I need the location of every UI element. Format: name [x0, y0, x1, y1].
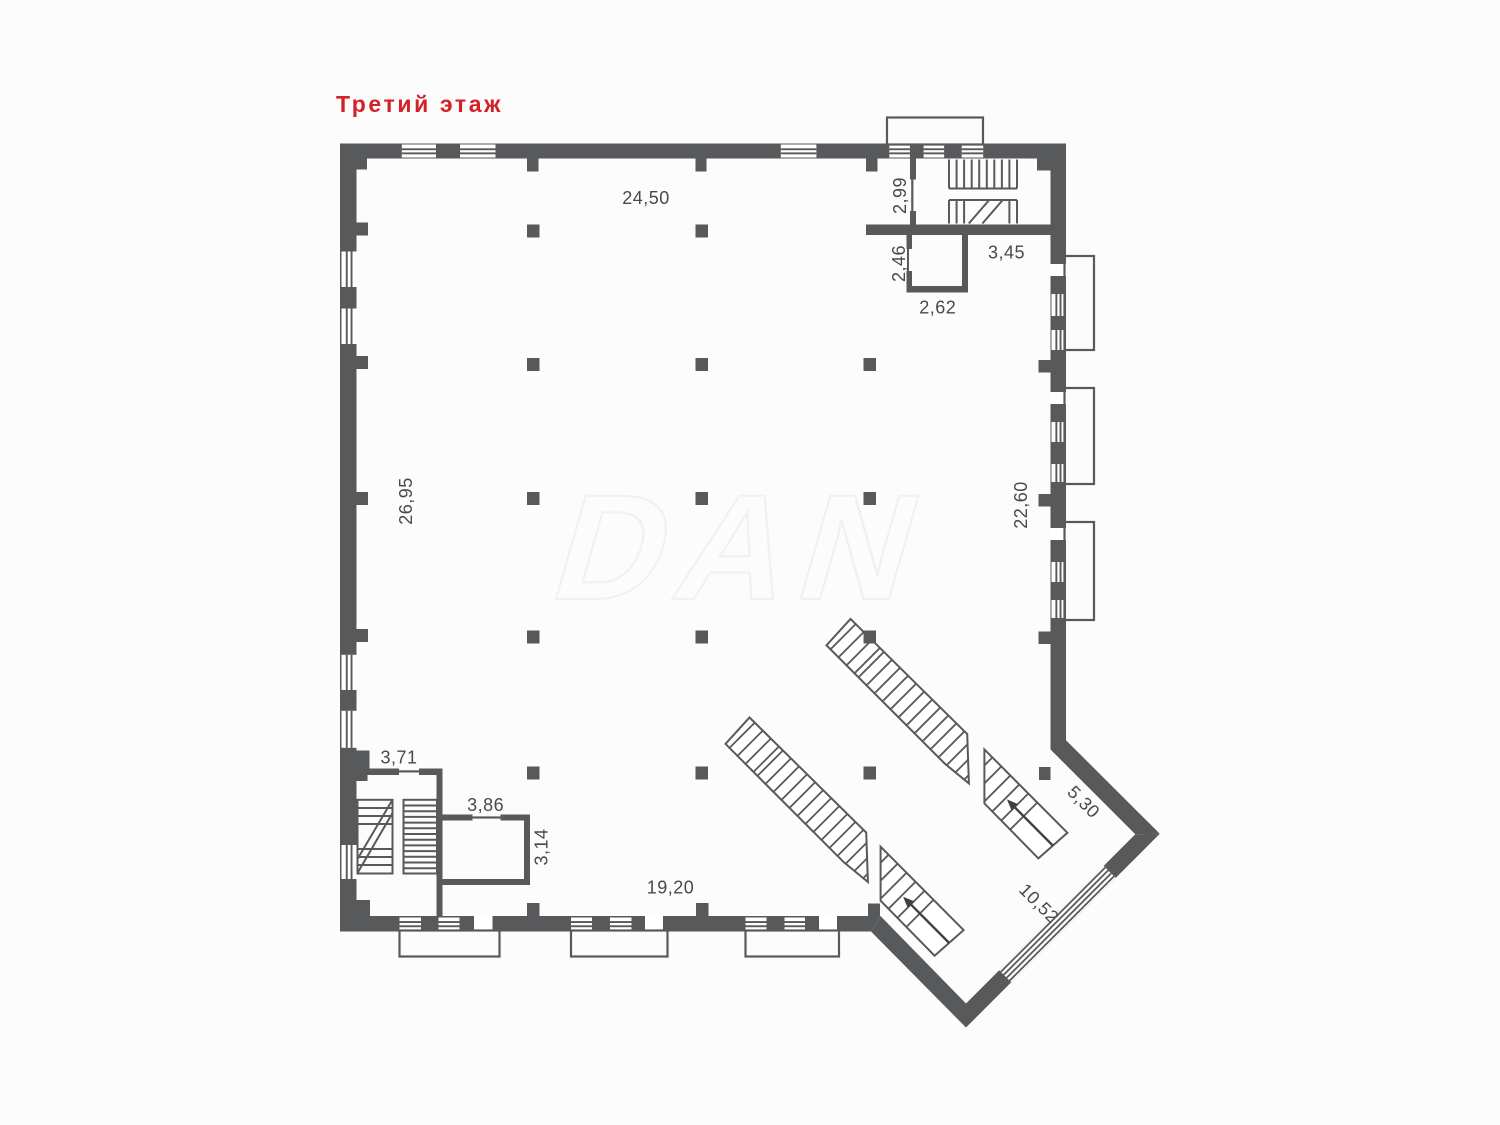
- svg-text:2,62: 2,62: [919, 298, 956, 318]
- svg-text:3,45: 3,45: [988, 243, 1025, 263]
- svg-text:26,95: 26,95: [396, 477, 416, 525]
- svg-text:22,60: 22,60: [1011, 481, 1031, 529]
- svg-text:19,20: 19,20: [647, 878, 695, 898]
- svg-text:3,14: 3,14: [532, 828, 552, 865]
- svg-text:2,99: 2,99: [890, 177, 910, 214]
- svg-text:3,86: 3,86: [467, 795, 504, 815]
- svg-text:Третий этаж: Третий этаж: [336, 91, 503, 117]
- svg-text:DAN: DAN: [537, 464, 952, 632]
- svg-text:3,71: 3,71: [380, 748, 417, 768]
- svg-text:24,50: 24,50: [622, 188, 670, 208]
- svg-text:2,46: 2,46: [889, 245, 909, 282]
